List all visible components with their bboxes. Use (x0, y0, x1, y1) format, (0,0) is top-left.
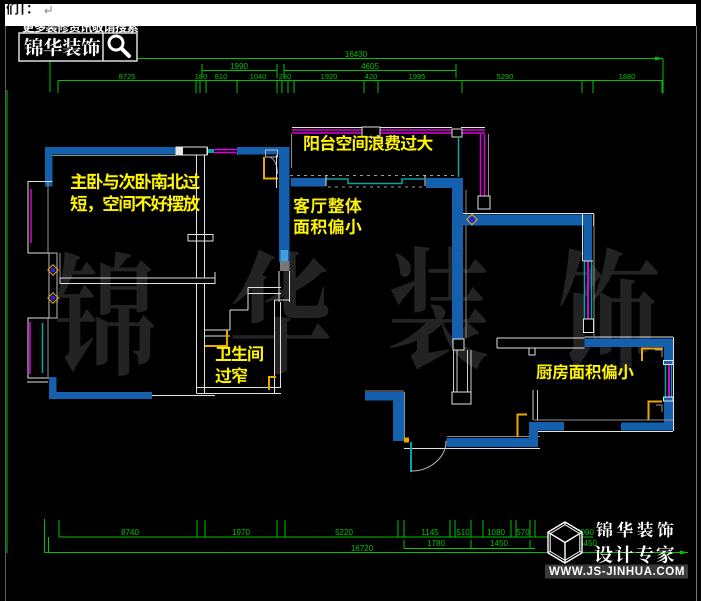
svg-text:WWW.JS-JINHUA.COM: WWW.JS-JINHUA.COM (549, 566, 685, 578)
svg-text:1040: 1040 (250, 72, 267, 81)
svg-text:810: 810 (215, 72, 228, 81)
svg-text:8740: 8740 (121, 528, 139, 537)
svg-text:5290: 5290 (497, 72, 514, 81)
svg-text:1880: 1880 (619, 72, 636, 81)
svg-text:1080: 1080 (487, 528, 505, 537)
svg-text:5220: 5220 (335, 528, 353, 537)
svg-text:1450: 1450 (490, 539, 508, 548)
svg-text:8725: 8725 (119, 72, 136, 81)
svg-text:1995: 1995 (409, 72, 426, 81)
svg-text:230: 230 (279, 72, 292, 81)
svg-text:1970: 1970 (232, 528, 250, 537)
svg-text:1920: 1920 (321, 72, 338, 81)
svg-text:570: 570 (516, 528, 530, 537)
svg-text:1780: 1780 (427, 539, 445, 548)
svg-text:420: 420 (365, 72, 378, 81)
svg-text:1145: 1145 (421, 528, 439, 537)
svg-text:4605: 4605 (361, 62, 379, 71)
svg-text:1990: 1990 (230, 62, 248, 71)
svg-text:16720: 16720 (351, 544, 374, 553)
svg-text:16430: 16430 (345, 50, 368, 59)
svg-text:180: 180 (195, 72, 208, 81)
svg-text:510: 510 (456, 528, 470, 537)
